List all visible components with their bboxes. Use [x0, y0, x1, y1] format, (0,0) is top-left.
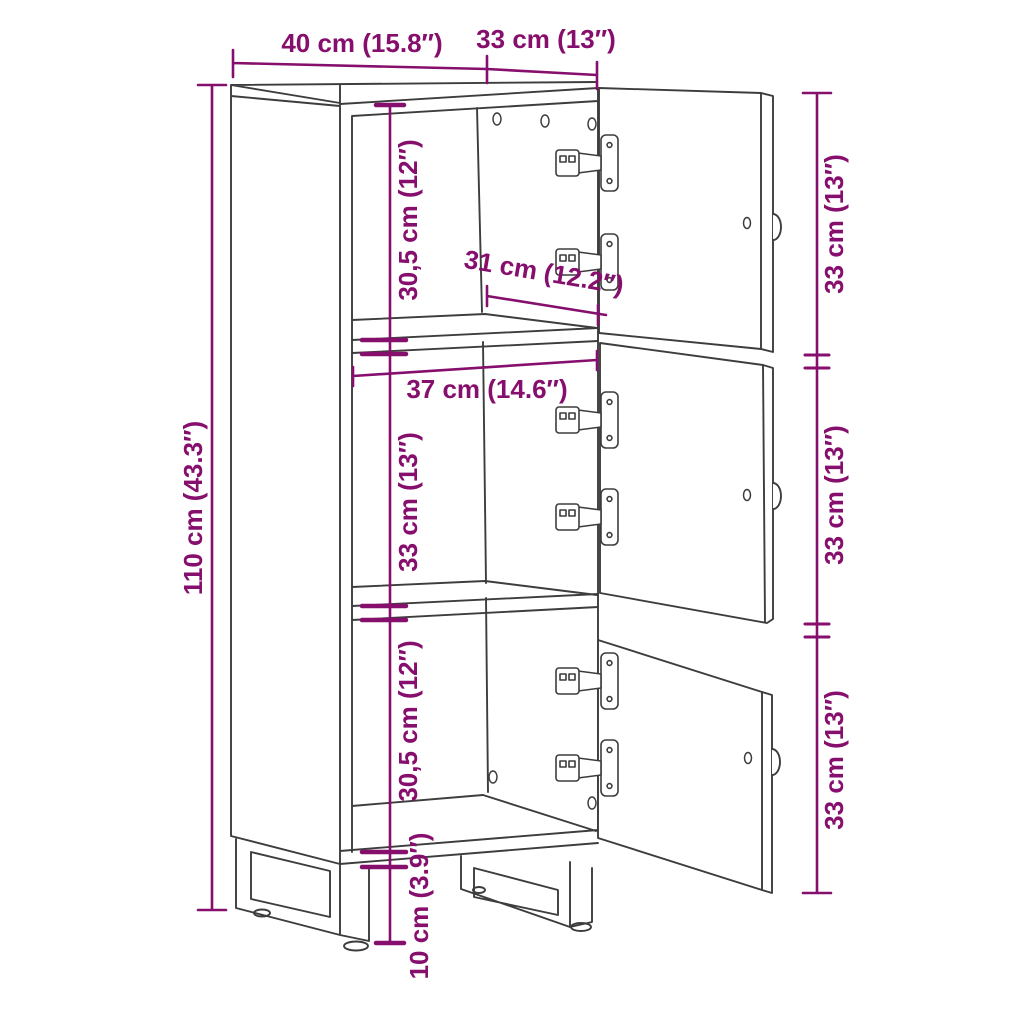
hinge-icon [556, 489, 618, 545]
label-width-top: 40 cm (15.8″) [281, 28, 442, 58]
label-compartment-middle: 33 cm (13″) [393, 432, 423, 572]
door-middle-knob-icon [773, 483, 781, 509]
cabinet-dimension-diagram: 40 cm (15.8″) 33 cm (13″) 110 cm (43.3″)… [0, 0, 1024, 1024]
hinge-icon [556, 135, 618, 191]
diagram-canvas: 40 cm (15.8″) 33 cm (13″) 110 cm (43.3″)… [0, 0, 1024, 1024]
label-height-overall: 110 cm (43.3″) [178, 421, 208, 595]
door-bottom [598, 640, 780, 893]
hinge-icon [556, 740, 618, 796]
cabinet-back-corner [477, 108, 488, 792]
label-door-bottom: 33 cm (13″) [819, 690, 849, 830]
label-compartment-top: 30,5 cm (12″) [393, 139, 423, 300]
label-compartment-bottom: 30,5 cm (12″) [393, 640, 423, 801]
door-middle [600, 343, 781, 623]
door-top [599, 88, 781, 352]
screw-holes [489, 113, 596, 809]
label-door-middle: 33 cm (13″) [819, 425, 849, 565]
hinge-icon [556, 653, 618, 709]
label-width-interior: 37 cm (14.6″) [406, 374, 567, 404]
leg-right [461, 856, 592, 931]
label-door-top: 33 cm (13″) [819, 154, 849, 294]
label-depth-top: 33 cm (13″) [476, 24, 616, 54]
label-leg-height: 10 cm (3.9″) [404, 833, 434, 980]
door-top-knob-icon [773, 214, 781, 240]
cabinet-floor [352, 795, 596, 831]
leg-left [236, 839, 369, 951]
door-bottom-knob-icon [772, 749, 780, 775]
